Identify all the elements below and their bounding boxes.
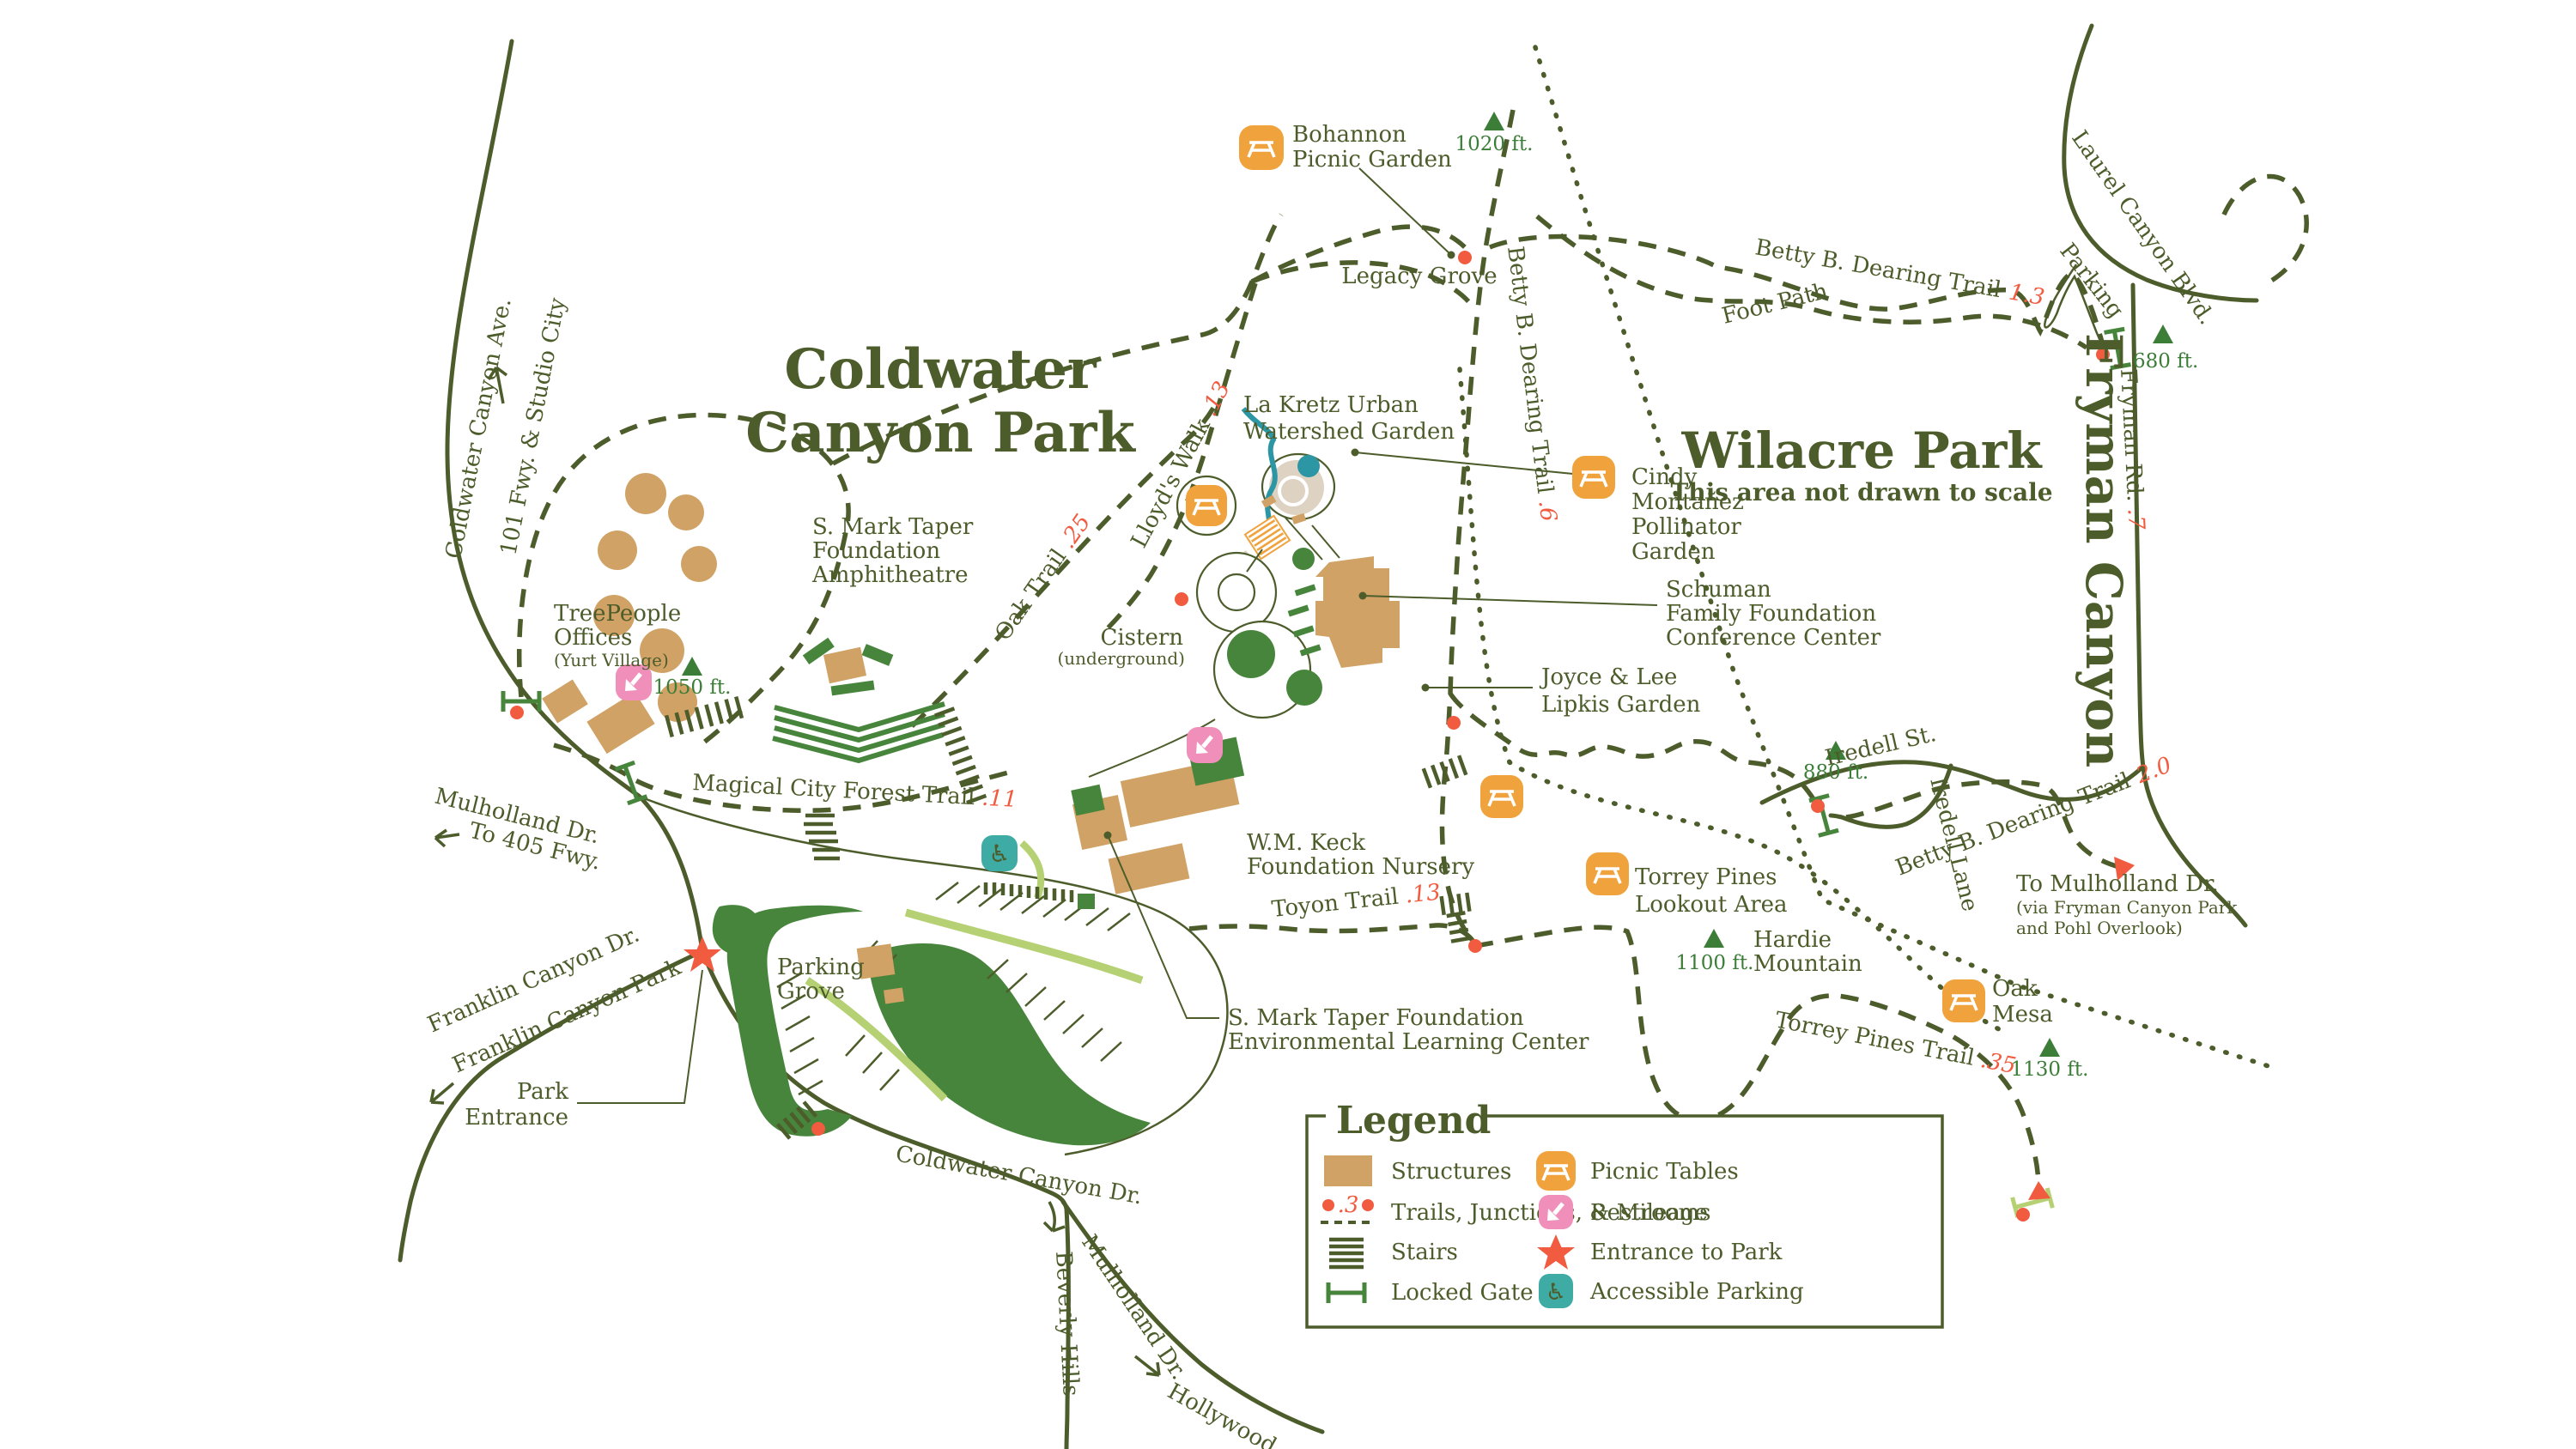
hardie-label: Hardie: [1753, 927, 1832, 953]
amphitheatre-label-3: Amphitheatre: [811, 562, 968, 588]
treepeople-label: TreePeople: [554, 601, 681, 627]
elc-label-2: Environmental Learning Center: [1228, 1029, 1589, 1055]
legend-entrance-label: Entrance to Park: [1590, 1240, 1783, 1265]
coldwater-park-title: Coldwater: [784, 337, 1097, 402]
treepeople-building: [542, 679, 588, 723]
yurt: [625, 473, 666, 514]
park-map: ♿ Coldwater Canyon Park Wilacre Park Thi…: [0, 0, 2576, 1449]
peak-icon: [2153, 324, 2173, 343]
pond-teal: [1297, 455, 1320, 477]
picnic-icon: [1186, 485, 1227, 526]
legend-accessible-icon: ♿: [1539, 1274, 1573, 1308]
accessible-parking-icon: ♿: [981, 835, 1018, 871]
legacy-grove-label: Legacy Grove: [1341, 264, 1497, 289]
to-mulholland-label-2: (via Fryman Canyon Park: [2016, 897, 2238, 918]
lakretz-label: La Kretz Urban: [1243, 392, 1419, 418]
laurel-label: Laurel Canyon Blvd.: [2066, 126, 2220, 330]
oak-mesa-label: Oak: [1992, 976, 2038, 1002]
fryman-rd-road: [2133, 285, 2245, 925]
svg-text:♿: ♿: [1546, 1279, 1566, 1306]
legend-restrooms-label: Restrooms: [1590, 1200, 1711, 1226]
to-mulholland-label-3: and Pohl Overlook): [2016, 918, 2183, 938]
keck-label: W.M. Keck: [1247, 830, 1365, 856]
keck-nursery-buildings: [1071, 737, 1244, 909]
legend-structures-label: Structures: [1391, 1159, 1511, 1185]
bohannon-label-2: Picnic Garden: [1292, 147, 1452, 173]
amphitheatre-structure: [862, 644, 894, 666]
peak-icon: [2039, 1038, 2060, 1057]
tree-circle: [1292, 548, 1315, 570]
peak-icon: [1704, 929, 1724, 948]
cistern-label: Cistern: [1100, 625, 1183, 651]
park-entrance-label: Park: [517, 1079, 568, 1105]
coldwater-dr-label: Coldwater Canyon Dr.: [894, 1141, 1145, 1210]
elev-1130: 1130 ft.: [2011, 1058, 2089, 1081]
elc-label: S. Mark Taper Foundation: [1228, 1005, 1524, 1031]
beverly-hills-label: Beverly Hills: [1050, 1251, 1084, 1397]
picnic-icon: [1239, 125, 1284, 170]
amphitheatre: [773, 638, 945, 761]
toyon-trail-miles: .13: [1404, 879, 1442, 908]
amphitheatre-label-2: Foundation: [812, 538, 940, 564]
yurt: [668, 494, 704, 530]
torrey-lookout-label-2: Lookout Area: [1635, 892, 1788, 918]
grove-right-blob: [867, 943, 1151, 1145]
foot-path-label: Foot Path: [1719, 278, 1830, 330]
fryman-rd-miles: .7: [2123, 507, 2149, 530]
dearing-20-miles: 2.0: [2132, 752, 2175, 789]
legend-gate-label: Locked Gate: [1391, 1280, 1534, 1306]
lloyds-walk-label: Lloyd's Walk.13: [1127, 378, 1236, 553]
peak-icon: [682, 657, 702, 676]
treepeople-label-2: Offices: [554, 625, 632, 651]
schuman-leader: [1363, 596, 1657, 605]
nursery-green: [1078, 894, 1095, 909]
conference-center-building: [1315, 556, 1400, 668]
oak-trail-miles: .25: [1054, 510, 1096, 554]
toyon-trail-text: Toyon Trail: [1271, 884, 1400, 923]
nursery-building: [1109, 843, 1190, 894]
to-mulholland-label: To Mulholland Dr.: [2016, 871, 2219, 897]
dearing-6-text: Betty B. Dearing Trail: [1502, 245, 1558, 495]
cindy-label: Cindy: [1631, 464, 1698, 490]
toyon-trail-label: Toyon Trail.13: [1271, 879, 1443, 922]
parking-grove-label-2: Grove: [777, 979, 845, 1004]
amphitheatre-seats: [773, 704, 945, 761]
tree-circle: [1227, 630, 1275, 678]
laurel-loop-trail: [2224, 177, 2306, 283]
restroom-icon: [1187, 727, 1223, 763]
bohannon-leader: [1359, 168, 1451, 255]
bohannon-label: Bohannon: [1292, 122, 1406, 148]
legend-structures-swatch: [1324, 1155, 1372, 1186]
amphitheatre-stage: [823, 647, 866, 683]
legend-picnic-label: Picnic Tables: [1590, 1159, 1739, 1185]
legend-stairs-label: Stairs: [1391, 1240, 1458, 1265]
cindy-label-4: Garden: [1631, 539, 1716, 565]
treepeople-building: [586, 692, 654, 754]
picnic-icon: [1480, 775, 1523, 818]
tree-circle: [1286, 670, 1322, 706]
weir-stairs: [1245, 516, 1290, 559]
treepeople-label-3: (Yurt Village): [554, 650, 669, 670]
schuman-label: Schuman: [1666, 577, 1771, 603]
stairs-dearing-lower: [1442, 893, 1470, 915]
legend-title: Legend: [1336, 1099, 1491, 1143]
dearing-13-miles: 1.3: [2007, 279, 2046, 311]
lakretz-label-2: Watershed Garden: [1243, 419, 1455, 445]
elev-1100: 1100 ft.: [1676, 952, 1754, 974]
yurt: [598, 530, 637, 570]
yurt: [681, 546, 717, 582]
svg-text:♿: ♿: [988, 840, 1010, 868]
cistern-inner: [1218, 574, 1255, 610]
mulholland-se-label: Mulholland Dr.: [1076, 1230, 1192, 1385]
amphitheatre-structure: [831, 681, 875, 696]
picnic-icon: [1572, 456, 1615, 499]
picnic-icon: [1942, 979, 1985, 1022]
parking-grove-label: Parking: [777, 955, 865, 980]
cindy-label-2: Montañez: [1631, 489, 1744, 515]
grove-building-small: [884, 988, 904, 1004]
cindy-label-3: Pollinator: [1631, 514, 1741, 540]
hollywood-label: Hollywood: [1163, 1379, 1281, 1449]
elev-1020: 1020 ft.: [1455, 133, 1534, 155]
joyce-label-2: Lipkis Garden: [1541, 692, 1701, 718]
legend-mileage-sample: .3: [1338, 1192, 1359, 1218]
amphitheatre-label: S. Mark Taper: [812, 514, 974, 540]
cistern-label-2: (underground): [1057, 648, 1185, 669]
coldwater-park-title-2: Canyon Park: [745, 401, 1136, 465]
toyon-trail: [1189, 925, 1475, 944]
magical-trail-miles: .11: [981, 785, 1018, 813]
legend-restroom-icon: [1539, 1195, 1573, 1229]
picnic-icon: [1586, 852, 1629, 895]
legend: Legend Structures .3 Trails, Junctions, …: [1307, 1097, 1942, 1327]
oak-trail-label: Oak Trail.25: [990, 510, 1096, 646]
lloyds-walk-miles: .13: [1196, 378, 1236, 421]
dearing-6-miles: .6: [1533, 499, 1561, 523]
hardie-label-2: Mountain: [1753, 951, 1862, 977]
elev-680: 680 ft.: [2133, 350, 2198, 373]
schuman-label-3: Conference Center: [1666, 625, 1881, 651]
peak-icon: [1484, 112, 1504, 130]
oak-mesa-label-2: Mesa: [1992, 1002, 2053, 1028]
elev-880: 880 ft.: [1803, 761, 1868, 784]
park-entrance-label-2: Entrance: [465, 1105, 568, 1131]
oak-trail-text: Oak Trail: [990, 544, 1072, 646]
legend-picnic-icon: [1536, 1151, 1576, 1191]
torrey-lookout-label: Torrey Pines: [1635, 864, 1777, 890]
schuman-label-2: Family Foundation: [1666, 601, 1876, 627]
wilacre-park-title: Wilacre Park: [1680, 421, 2043, 480]
joyce-label: Joyce & Lee: [1539, 664, 1677, 690]
keck-label-2: Foundation Nursery: [1247, 854, 1474, 880]
dearing-6-label: Betty B. Dearing Trail.6: [1502, 245, 1561, 523]
entrance-island-blob: [713, 905, 761, 955]
betty-dearing-6-trail: [1442, 110, 1513, 944]
stairs-amphitheatre: [804, 815, 840, 858]
elev-1050: 1050 ft.: [653, 676, 732, 699]
legend-accessible-label: Accessible Parking: [1589, 1279, 1804, 1305]
park-entrance-star: [683, 937, 721, 972]
